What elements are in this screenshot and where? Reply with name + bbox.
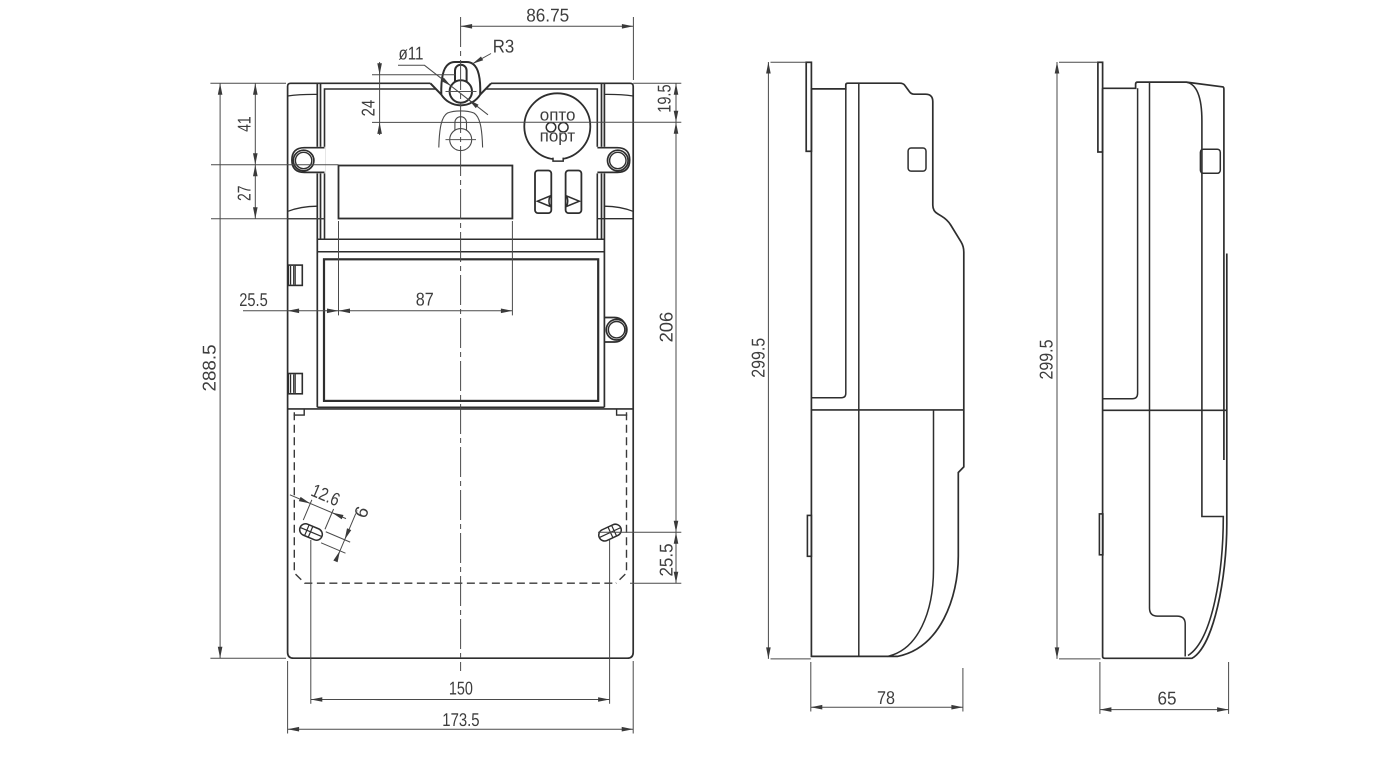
svg-text:опто: опто xyxy=(540,105,576,124)
svg-text:24: 24 xyxy=(357,100,378,117)
svg-text:65: 65 xyxy=(1158,688,1177,709)
svg-text:78: 78 xyxy=(877,687,895,708)
svg-text:206: 206 xyxy=(655,312,676,343)
svg-text:ø11: ø11 xyxy=(399,43,424,64)
svg-text:299.5: 299.5 xyxy=(747,338,768,378)
svg-text:27: 27 xyxy=(234,185,255,201)
svg-text:288.5: 288.5 xyxy=(199,345,220,392)
svg-text:R3: R3 xyxy=(493,36,515,57)
svg-text:порт: порт xyxy=(540,127,576,146)
svg-text:150: 150 xyxy=(449,677,473,698)
svg-text:6: 6 xyxy=(350,503,373,521)
svg-text:41: 41 xyxy=(234,116,255,132)
svg-text:86.75: 86.75 xyxy=(526,5,569,26)
svg-text:19.5: 19.5 xyxy=(653,84,674,112)
svg-text:12.6: 12.6 xyxy=(308,479,343,510)
svg-text:25.5: 25.5 xyxy=(239,289,268,310)
svg-text:299.5: 299.5 xyxy=(1035,340,1056,380)
svg-text:173.5: 173.5 xyxy=(442,709,479,730)
svg-text:25.5: 25.5 xyxy=(655,544,676,577)
svg-text:87: 87 xyxy=(416,288,434,309)
